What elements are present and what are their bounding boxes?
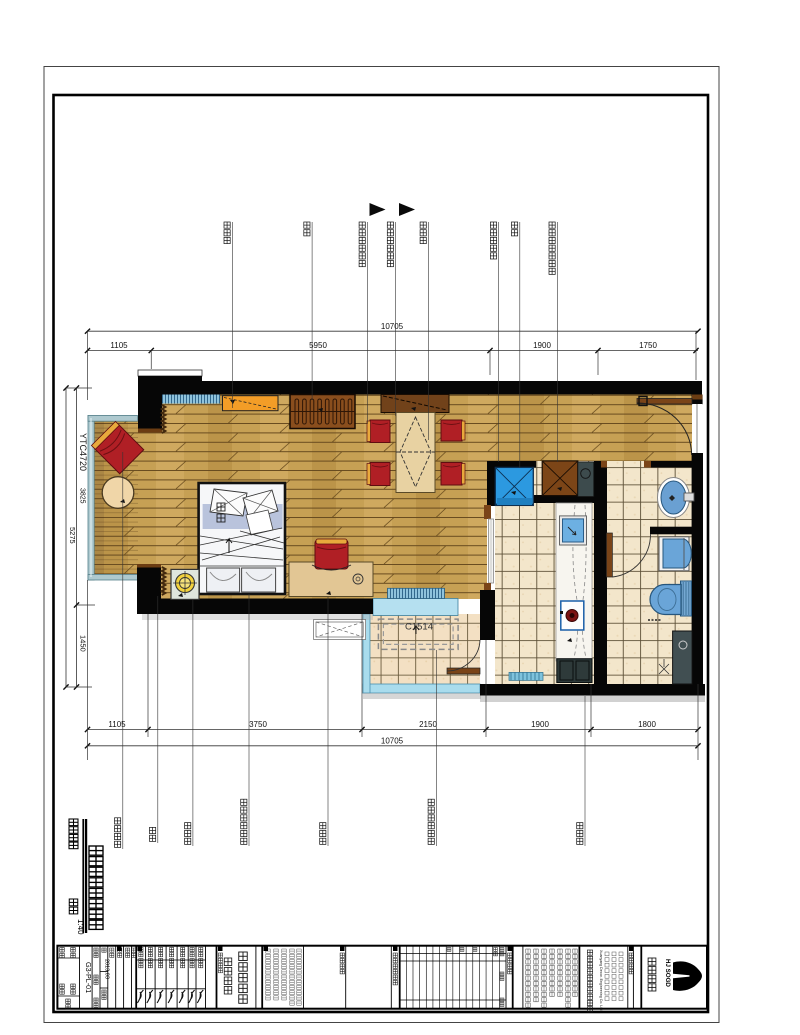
svg-text:2150: 2150 — [419, 720, 437, 729]
svg-text:10705: 10705 — [381, 737, 404, 746]
svg-text:1750: 1750 — [639, 341, 657, 350]
svg-text:1800: 1800 — [638, 720, 656, 729]
svg-text:1900: 1900 — [533, 341, 551, 350]
svg-text:C1514: C1514 — [405, 622, 433, 633]
svg-text:1900: 1900 — [531, 720, 549, 729]
svg-text:5275: 5275 — [68, 527, 77, 544]
svg-text:3825: 3825 — [79, 488, 86, 504]
svg-text:Xuanyang Decor. Engineering Co: Xuanyang Decor. Engineering Co. Ltd — [599, 950, 603, 1010]
svg-text:G3-PL-01: G3-PL-01 — [84, 962, 93, 993]
svg-text:HJ SOGD: HJ SOGD — [664, 959, 671, 987]
svg-text:1105: 1105 — [108, 720, 126, 729]
svg-text:1450: 1450 — [79, 635, 88, 652]
svg-text:YTC4720: YTC4720 — [78, 433, 88, 471]
svg-text:10705: 10705 — [381, 322, 404, 331]
svg-text:2013.03: 2013.03 — [104, 959, 110, 979]
svg-text:1105: 1105 — [110, 341, 128, 350]
svg-text:3750: 3750 — [249, 720, 267, 729]
svg-text:1:40: 1:40 — [76, 919, 85, 935]
